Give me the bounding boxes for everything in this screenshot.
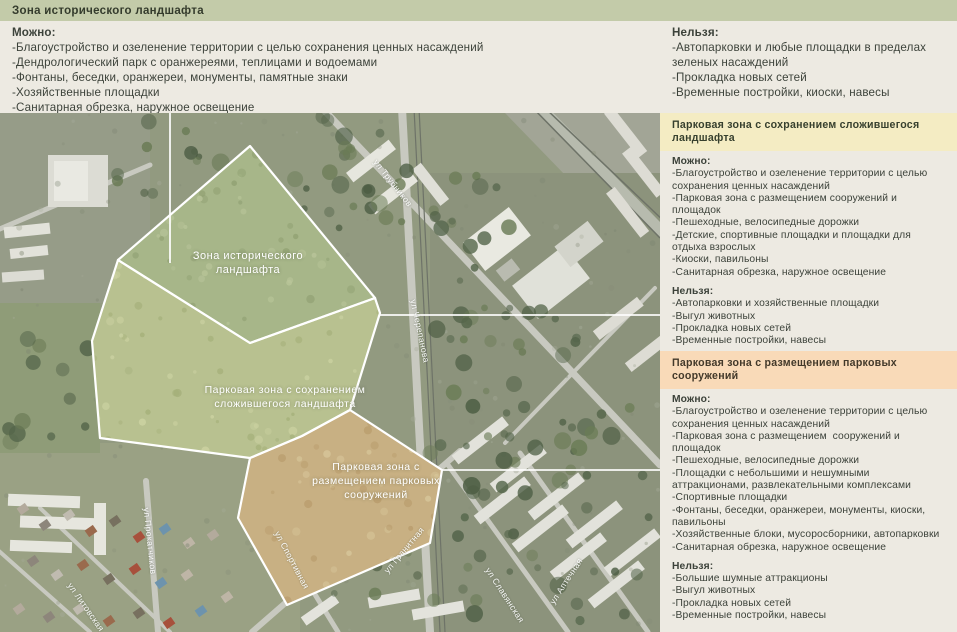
cannot-label: Нельзя: (672, 561, 945, 573)
preserve-cannot-list: -Автопарковки и хозяйственные площадки-В… (672, 298, 945, 347)
can-label: Можно: (12, 25, 652, 40)
list-item: -Прокладка новых сетей (672, 323, 945, 335)
list-item: -Площадки с небольшими и нешумными аттра… (672, 468, 945, 493)
list-item: -Парковая зона с размещением сооружений … (672, 193, 945, 218)
can-label: Можно: (672, 156, 945, 168)
historic-can-column: Можно: -Благоустройство и озеленение тер… (12, 25, 652, 115)
list-item: -Выгул животных (672, 311, 945, 323)
cannot-label: Нельзя: (672, 286, 945, 298)
aerial-map: Зона исторического ландшафта Парковая зо… (0, 113, 660, 632)
aerial-map-graphic (0, 113, 660, 632)
constructions-can-list: -Благоустройство и озеленение территории… (672, 406, 945, 554)
cannot-label: Нельзя: (672, 25, 950, 40)
zone-preserve-label: Парковая зона с сохранением сложившегося… (178, 383, 392, 411)
historic-cannot-list: -Автопарковки и любые площадки в предела… (672, 40, 950, 100)
list-item: -Пешеходные, велосипедные дорожки (672, 217, 945, 229)
list-item: -Дендрологический парк с оранжереями, те… (12, 55, 652, 70)
list-item: -Спортивные площадки (672, 492, 945, 504)
zone-historic-label: Зона исторического ландшафта (163, 249, 333, 277)
list-item: -Благоустройство и озеленение территории… (672, 406, 945, 431)
list-item: -Фонтаны, беседки, оранжереи, монументы,… (672, 505, 945, 530)
list-item: -Благоустройство и озеленение территории… (672, 168, 945, 193)
list-item: -Автопарковки и хозяйственные площадки (672, 298, 945, 310)
list-item: -Благоустройство и озеленение территории… (12, 40, 652, 55)
infographic-page: Зона исторического ландшафта Можно: -Бла… (0, 0, 957, 632)
historic-can-list: -Благоустройство и озеленение территории… (12, 40, 652, 115)
list-item: -Пешеходные, велосипедные дорожки (672, 455, 945, 467)
list-item: -Киоски, павильоны (672, 254, 945, 266)
constructions-cannot-list: -Большие шумные аттракционы-Выгул животн… (672, 573, 945, 622)
list-item: -Детские, спортивные площадки и площадки… (672, 230, 945, 255)
section-preserve: Парковая зона с сохранением сложившегося… (660, 113, 957, 347)
right-panel: Парковая зона с сохранением сложившегося… (660, 113, 957, 632)
list-item: -Временные постройки, киоски, навесы (672, 85, 950, 100)
list-item: -Фонтаны, беседки, оранжереи, монументы,… (12, 70, 652, 85)
list-item: -Автопарковки и любые площадки в предела… (672, 40, 950, 70)
list-item: -Выгул животных (672, 585, 945, 597)
list-item: -Большие шумные аттракционы (672, 573, 945, 585)
zone-constructions-label: Парковая зона с размещением парковых соо… (312, 460, 440, 502)
historic-cannot-column: Нельзя: -Автопарковки и любые площадки в… (672, 25, 950, 100)
constructions-title-band: Парковая зона с размещением парковых соо… (660, 351, 957, 389)
list-item: -Парковая зона с размещением сооружений … (672, 431, 945, 456)
list-item: -Санитарная обрезка, наружное освещение (672, 542, 945, 554)
list-item: -Прокладка новых сетей (672, 598, 945, 610)
historic-zone-title: Зона исторического ландшафта (12, 5, 204, 17)
can-label: Можно: (672, 394, 945, 406)
preserve-title-band: Парковая зона с сохранением сложившегося… (660, 113, 957, 151)
list-item: -Хозяйственные блоки, мусоросборники, ав… (672, 529, 945, 541)
section-constructions: Парковая зона с размещением парковых соо… (660, 351, 957, 622)
list-item: -Временные постройки, навесы (672, 610, 945, 622)
list-item: -Временные постройки, навесы (672, 335, 945, 347)
list-item: -Прокладка новых сетей (672, 70, 950, 85)
list-item: -Санитарная обрезка, наружное освещение (672, 267, 945, 279)
historic-zone-title-band: Зона исторического ландшафта (0, 0, 957, 21)
preserve-can-list: -Благоустройство и озеленение территории… (672, 168, 945, 279)
list-item: -Хозяйственные площадки (12, 85, 652, 100)
